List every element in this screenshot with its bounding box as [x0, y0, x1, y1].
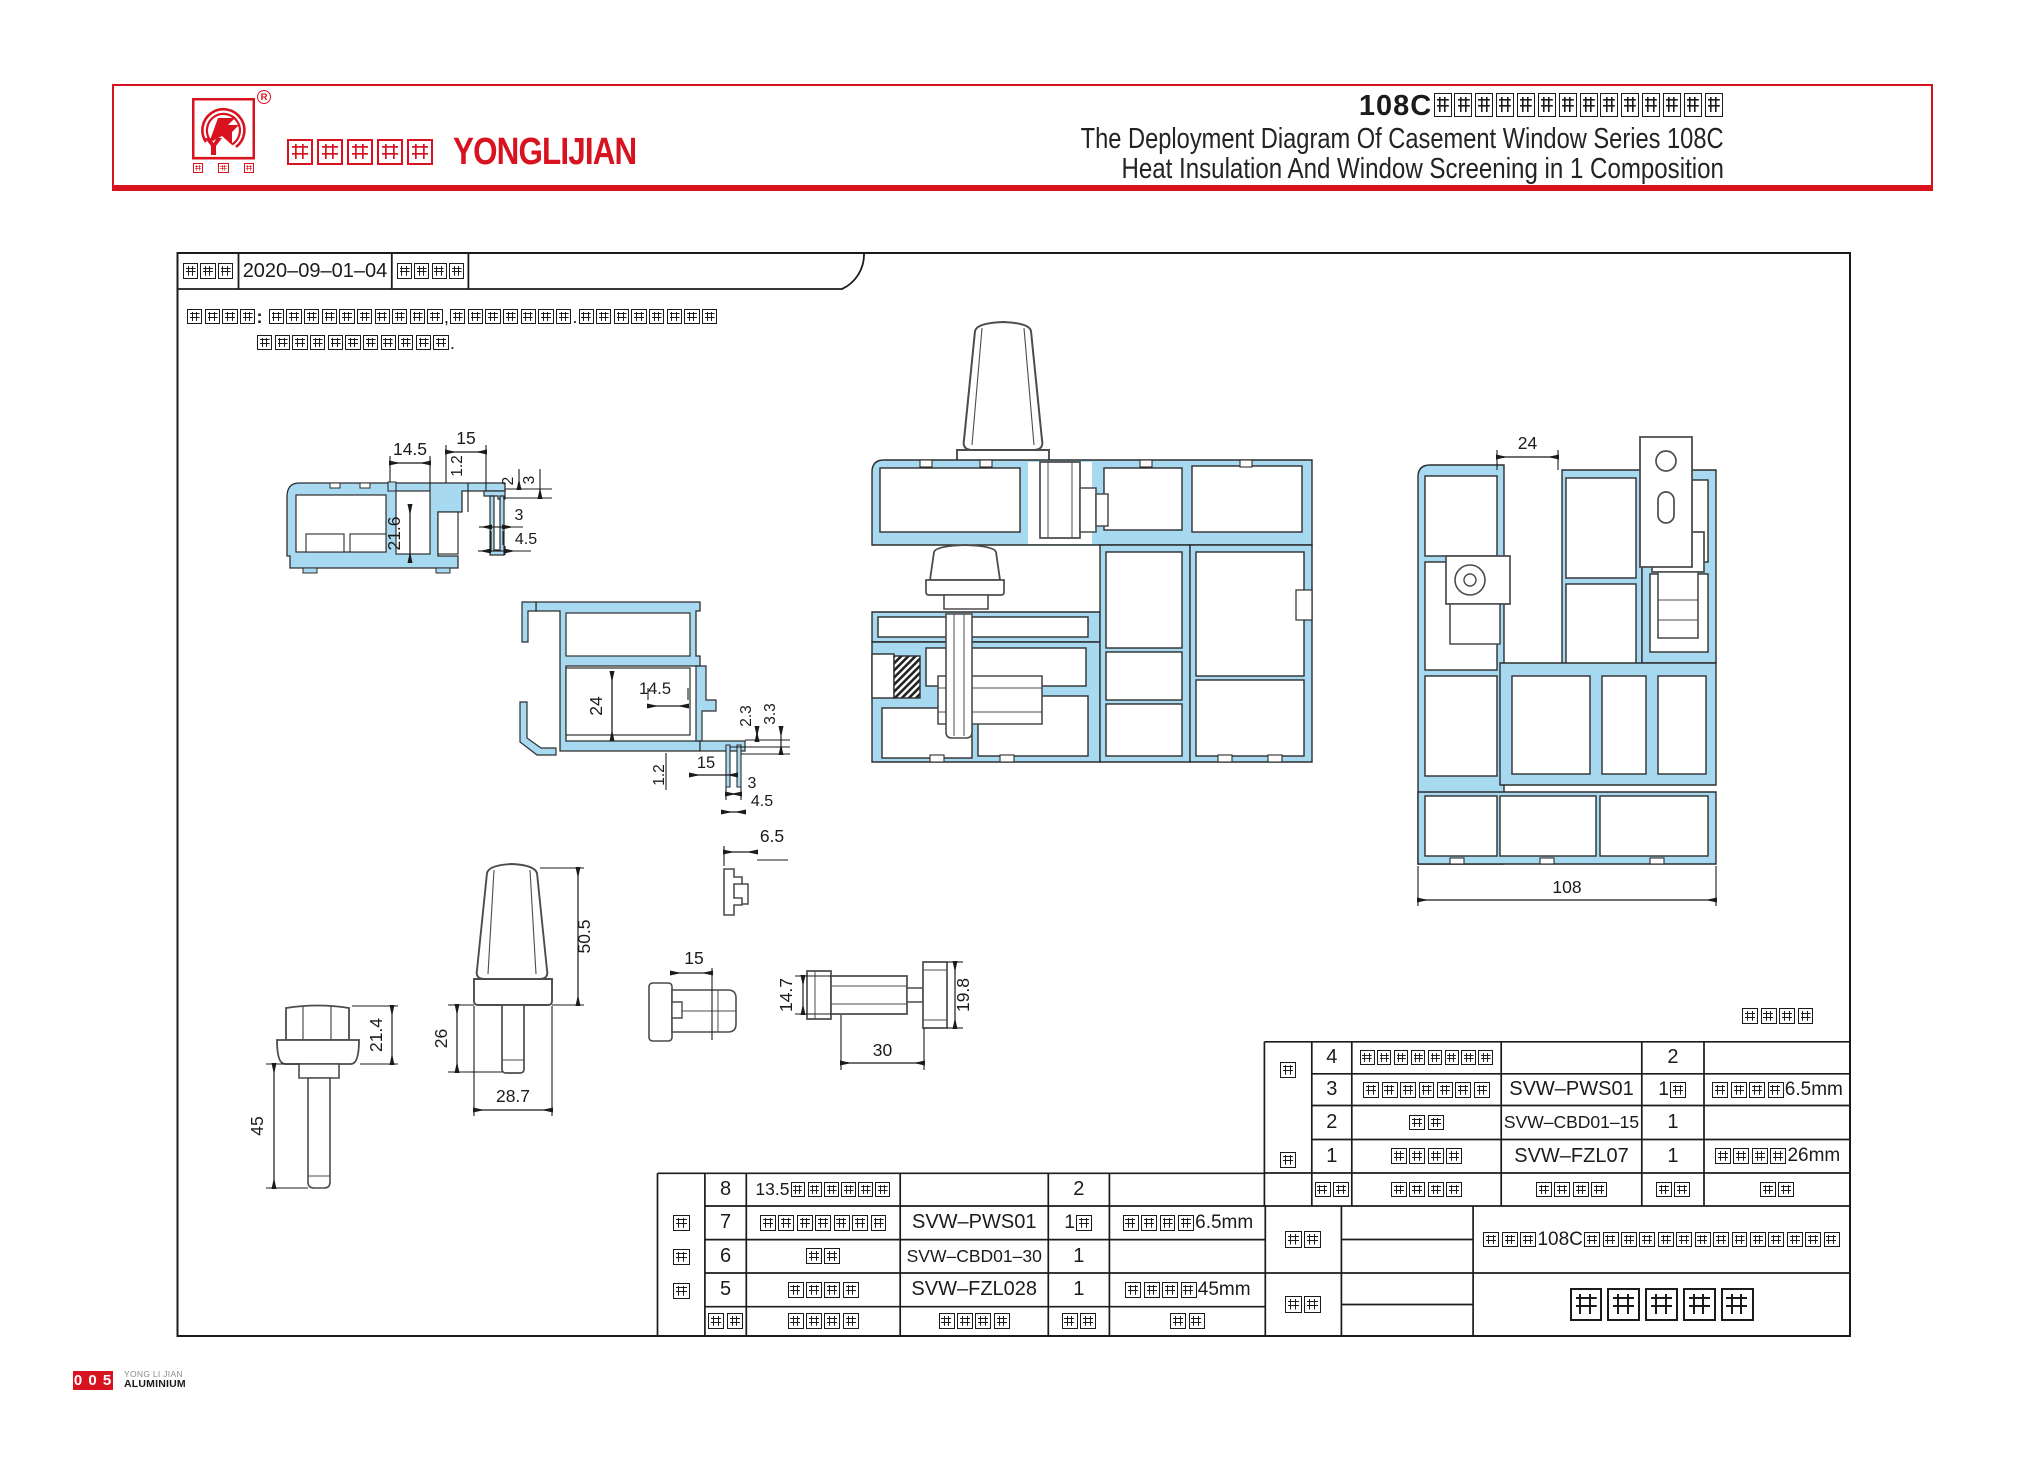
svg-text:15: 15: [684, 948, 703, 968]
svg-text:30: 30: [873, 1040, 893, 1060]
svg-text:26: 26: [431, 1029, 451, 1048]
svg-text:45: 45: [247, 1116, 267, 1135]
svg-text:50.5: 50.5: [574, 919, 594, 953]
svg-text:15: 15: [456, 428, 475, 448]
svg-text:19.8: 19.8: [953, 978, 973, 1012]
svg-text:14.7: 14.7: [776, 978, 796, 1012]
svg-text:24: 24: [586, 696, 606, 716]
svg-text:2: 2: [500, 477, 517, 486]
svg-text:6.5: 6.5: [760, 826, 784, 846]
svg-text:3: 3: [748, 775, 757, 792]
svg-text:4.5: 4.5: [515, 531, 537, 548]
svg-text:3: 3: [515, 507, 524, 524]
svg-text:21.4: 21.4: [366, 1018, 386, 1052]
svg-text:14.5: 14.5: [639, 680, 671, 698]
svg-text:28.7: 28.7: [496, 1086, 530, 1106]
svg-text:1.2: 1.2: [651, 764, 668, 786]
svg-text:4.5: 4.5: [751, 793, 773, 810]
svg-text:3: 3: [521, 476, 538, 485]
svg-text:14.5: 14.5: [393, 439, 427, 459]
svg-text:1.2: 1.2: [449, 455, 466, 477]
svg-text:24: 24: [1518, 433, 1538, 453]
svg-text:15: 15: [697, 754, 715, 772]
svg-text:2.3: 2.3: [738, 705, 755, 727]
svg-text:3.3: 3.3: [762, 703, 779, 725]
svg-text:108: 108: [1552, 877, 1581, 897]
svg-text:21.6: 21.6: [384, 516, 404, 550]
